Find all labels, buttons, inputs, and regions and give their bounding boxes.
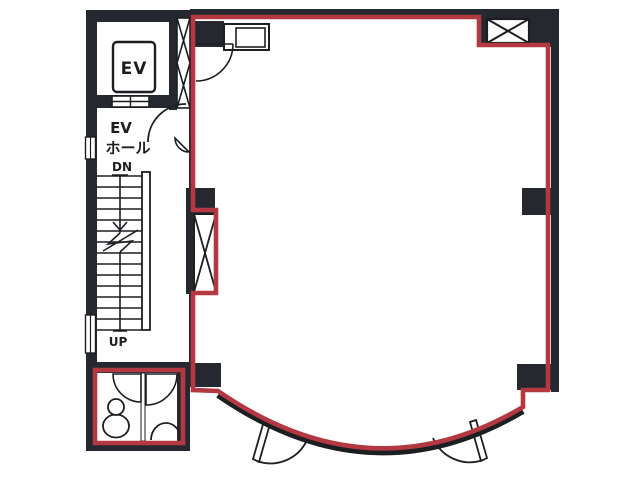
pipe-shaft-left-icon <box>194 214 216 292</box>
toilet-bowl <box>103 415 129 438</box>
stair-stringer <box>142 172 150 330</box>
sink-basin <box>236 28 265 47</box>
elevator-car-label: EV <box>121 59 148 79</box>
floor-plan-drawing: EV EV ホール DN UP <box>0 0 640 480</box>
pillar-top-left <box>195 21 224 47</box>
ev-hall-label-line2: ホール <box>105 139 150 157</box>
duct-strip-box <box>177 18 190 108</box>
pipe-shaft-icon <box>487 19 529 43</box>
floor-plan-page: EV EV ホール DN UP <box>0 0 640 480</box>
toilet-tank <box>108 399 124 415</box>
ev-hall-label-line1: EV <box>110 119 132 137</box>
wall-right <box>551 14 559 392</box>
stairs-down-label: DN <box>112 160 132 174</box>
duct-x-strip-icon <box>177 18 190 108</box>
kitchen-counter <box>224 24 269 50</box>
stairs-up-label: UP <box>109 335 128 349</box>
elevator-door-icon <box>112 96 149 107</box>
